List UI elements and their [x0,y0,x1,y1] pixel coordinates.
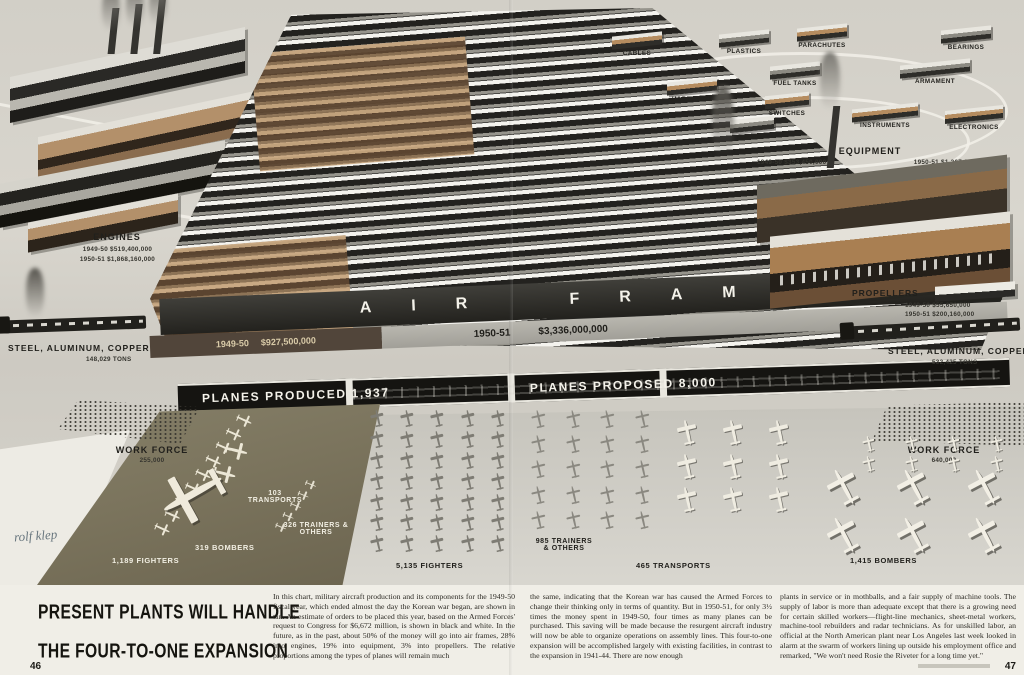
planes-banner: PLANES PRODUCED 1,937 PLANES PROPOSED 8,… [178,358,1011,413]
article-column-3: plants in service or in mothballs, and a… [780,592,1016,661]
planes-1950-bombers [808,468,1020,553]
plane-icon [599,484,617,505]
steel-left-tons: 148,029 TONS [86,356,132,363]
plane-icon [369,513,385,532]
plane-icon [599,434,617,455]
smoke-plume [149,0,167,26]
plane-icon [675,418,699,446]
plane-icon [491,471,507,490]
planes-1950-transports [664,420,802,512]
plane-icon [634,409,652,430]
satellite-factory-plastics: PLASTICS [712,32,776,55]
plane-icon [399,534,415,553]
factory-building [770,61,820,79]
headline-line2: THE FOUR-TO-ONE EXPANSION [38,632,300,671]
plane-icon [721,486,745,514]
plane-icon [767,452,791,480]
planes-1949-bomber [168,462,218,527]
factory-label: BEARINGS [934,44,998,51]
plane-icon [947,435,962,453]
headline-line1: PRESENT PLANTS WILL HANDLE [38,593,300,632]
equipment-1949-figure: 1949-50 $353,450,000 [757,159,826,166]
plane-icon [565,509,583,530]
plane-icon [430,430,446,449]
plane-icon [399,513,415,532]
plane-icon [491,430,507,449]
smoke-plume [712,86,734,160]
plane-icon [369,471,385,490]
label-465-transports: 465 TRANSPORTS [636,561,711,570]
artist-signature: rolf klep [13,527,57,546]
satellite-factory-instruments: INSTRUMENTS [845,106,925,129]
label-103-transports: 103 TRANSPORTS [242,490,308,504]
plane-icon [634,434,652,455]
engines-title: ENGINES [52,232,182,242]
plane-icon [460,451,476,470]
plane-icon [430,451,446,470]
plane-icon [767,486,791,514]
workforce-left-title: WORK FORCE [104,445,200,455]
plane-icon [963,511,1006,558]
engines-1950-figure: 1950-51 $1,868,160,000 [45,256,190,263]
plane-icon [822,463,865,510]
factory-building [612,31,662,49]
plane-icon [634,459,652,480]
plane-icon [530,509,548,530]
plane-icon [675,452,699,480]
article-column-2: the same, indicating that the Korean war… [530,592,772,661]
propellers-title: PROPELLERS [852,288,919,298]
plane-icon [460,513,476,532]
factory-building [719,29,769,47]
plane-icon [399,492,415,511]
plane-icon [599,459,617,480]
airframes-1950-label: 1950-51 [474,327,511,339]
label-5135-fighters: 5,135 FIGHTERS [396,561,463,570]
plane-icon [491,492,507,511]
plane-icon [634,484,652,505]
article-column-1: In this chart, military aircraft product… [273,592,515,661]
planes-1950-fighters [362,410,514,552]
plane-icon [634,509,652,530]
plane-icon [565,459,583,480]
satellite-factory-bearings: BEARINGS [934,28,998,51]
plane-icon [369,409,385,428]
factory-building [730,116,774,134]
magazine-spread: AIR FRAMES 1949-50 $927,500,000 1950-51 … [0,0,1024,675]
plane-icon [767,418,791,446]
plane-icon [491,513,507,532]
factory-building [667,77,717,95]
plane-icon [721,452,745,480]
plane-icon [892,511,935,558]
engines-1949-figure: 1949-50 $519,400,000 [45,246,190,253]
steel-right-tons: 532,425 TONS [932,359,978,366]
factory-label: INSTRUMENTS [845,122,925,129]
planes-produced-label: PLANES PRODUCED 1,937 [202,385,390,405]
planes-1950-extra-row [848,436,1018,471]
plane-icon [460,430,476,449]
plane-icon [530,409,548,430]
plane-icon [430,492,446,511]
propellers-1949-figure: 1949-50 $55,650,000 [905,302,971,309]
satellite-factory-switches: SWITCHES [758,94,816,117]
smoke-plume [820,52,840,110]
plane-icon [399,430,415,449]
label-1189-fighters: 1,189 FIGHTERS [112,556,179,565]
workforce-crowd-left [58,400,200,444]
satellite-factory-electronics: ELECTRONICS [938,108,1010,131]
plane-icon [399,451,415,470]
factory-label: CABLES [605,50,669,57]
plane-icon [491,451,507,470]
factory-building [765,92,809,110]
page-number-right: 47 [1005,661,1016,672]
plane-icon [599,409,617,430]
plane-icon [892,463,935,510]
plane-icon [904,435,919,453]
plane-icon [599,509,617,530]
article-headline: PRESENT PLANTS WILL HANDLE THE FOUR-TO-O… [38,593,300,672]
plane-icon [491,409,507,428]
plane-icon [491,534,507,553]
plane-icon [399,471,415,490]
plane-icon [460,409,476,428]
factory-building [852,103,918,123]
satellite-factory-parachutes: PARACHUTES [790,26,854,49]
illustration-area: AIR FRAMES 1949-50 $927,500,000 1950-51 … [0,0,1024,585]
plane-icon [530,484,548,505]
plane-icon [530,459,548,480]
satellite-factory-cables: CABLES [605,34,669,57]
plane-icon [369,451,385,470]
factory-label: FUEL TANKS [763,80,827,87]
factory-label: PLASTICS [712,48,776,55]
airframes-1949-label: 1949-50 [216,338,249,349]
plane-icon [460,534,476,553]
plane-icon [430,513,446,532]
factory-label: PARACHUTES [790,42,854,49]
factory-building [900,58,970,78]
smoke-plume [26,268,44,318]
plane-icon [430,409,446,428]
factory-building [945,105,1003,124]
factory-label: ELECTRONICS [938,124,1010,131]
article-band: PRESENT PLANTS WILL HANDLE THE FOUR-TO-O… [0,585,1024,675]
plane-icon [430,534,446,553]
plane-icon [369,534,385,553]
factory-tan-rows-upper [251,37,475,172]
plane-icon [822,511,865,558]
plane-icon [565,434,583,455]
plane-icon [460,471,476,490]
plane-icon [989,435,1004,453]
label-319-bombers: 319 BOMBERS [195,543,255,552]
smoke-plume [126,0,144,28]
factory-building [797,23,847,41]
banner-separator [507,373,515,402]
airframes-1949-value: $927,500,000 [261,335,316,347]
factory-label: ARMAMENT [893,78,977,85]
page-number-left: 46 [30,661,41,672]
footer-microtext [918,664,990,668]
plane-icon [565,409,583,430]
plane-icon [565,484,583,505]
satellite-factory-fuel-tanks: FUEL TANKS [763,64,827,87]
plane-icon [369,492,385,511]
plane-icon [430,471,446,490]
airframes-1950-value: $3,336,000,000 [538,323,608,337]
label-985-trainers: 985 TRAINERS & OTHERS [532,538,596,552]
plane-icon [460,492,476,511]
plane-icon [530,434,548,455]
plane-icon [721,418,745,446]
factory-building [941,25,991,43]
planes-1950-trainers [522,410,660,529]
satellite-factory-armament: ARMAMENT [893,62,977,85]
label-326-trainers: 326 TRAINERS & OTHERS [282,522,350,536]
planes-proposed-label: PLANES PROPOSED 8,000 [530,375,717,395]
train-left [4,316,146,334]
equipment-title: EQUIPMENT [800,146,940,156]
steel-left-title: STEEL, ALUMINUM, COPPER [8,343,150,353]
label-1415-bombers: 1,415 BOMBERS [850,556,917,565]
plane-icon [369,430,385,449]
plane-icon [399,409,415,428]
plane-icon [675,486,699,514]
plane-icon [862,435,877,453]
steel-right-title: STEEL, ALUMINUM, COPPER [888,346,1024,356]
plane-icon [963,463,1006,510]
propellers-1950-figure: 1950-51 $200,160,000 [905,311,974,318]
